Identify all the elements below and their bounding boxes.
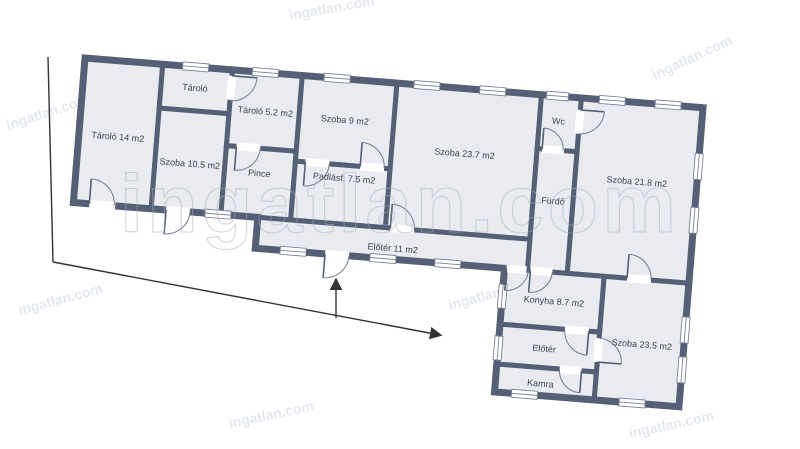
watermark-center: ingatlan.com: [120, 159, 680, 250]
window-icon: [370, 254, 397, 264]
window-icon: [414, 80, 441, 90]
room-label-wc: Wc: [552, 116, 566, 127]
window-icon: [324, 73, 351, 83]
window-icon: [677, 357, 687, 384]
window-icon: [252, 67, 279, 77]
window-icon: [434, 259, 461, 269]
window-icon: [511, 389, 538, 399]
window-icon: [479, 86, 506, 96]
entrance-door-icon: [323, 250, 349, 280]
window-icon: [689, 207, 699, 234]
street-arrow-icon: [53, 262, 440, 335]
window-icon: [546, 91, 569, 101]
window-icon: [493, 336, 503, 361]
window-icon: [693, 153, 703, 180]
watermark-left: ingatlan.com: [17, 280, 105, 318]
watermark-bottom-right: ingatlan.com: [627, 407, 715, 441]
window-icon: [599, 95, 626, 105]
window-icon: [619, 398, 646, 408]
watermark-top-right: ingatlan.com: [650, 32, 735, 83]
room-label-tarolo-small: Tároló: [182, 82, 208, 94]
floor-plan-page: ingatlan.com ingatlan.com ingatlan.com i…: [0, 0, 800, 449]
watermark-top-center: ingatlan.com: [288, 0, 376, 23]
window-icon: [182, 62, 209, 72]
window-icon: [680, 317, 690, 344]
boundary-line: [48, 57, 53, 262]
room-label-eloter: Előtér: [532, 343, 556, 355]
room-label-kamra: Kamra: [527, 378, 554, 390]
watermark-bottom-left: ingatlan.com: [227, 397, 315, 431]
window-icon: [655, 100, 682, 110]
floor-plan-svg: ingatlan.com ingatlan.com ingatlan.com i…: [0, 0, 800, 449]
